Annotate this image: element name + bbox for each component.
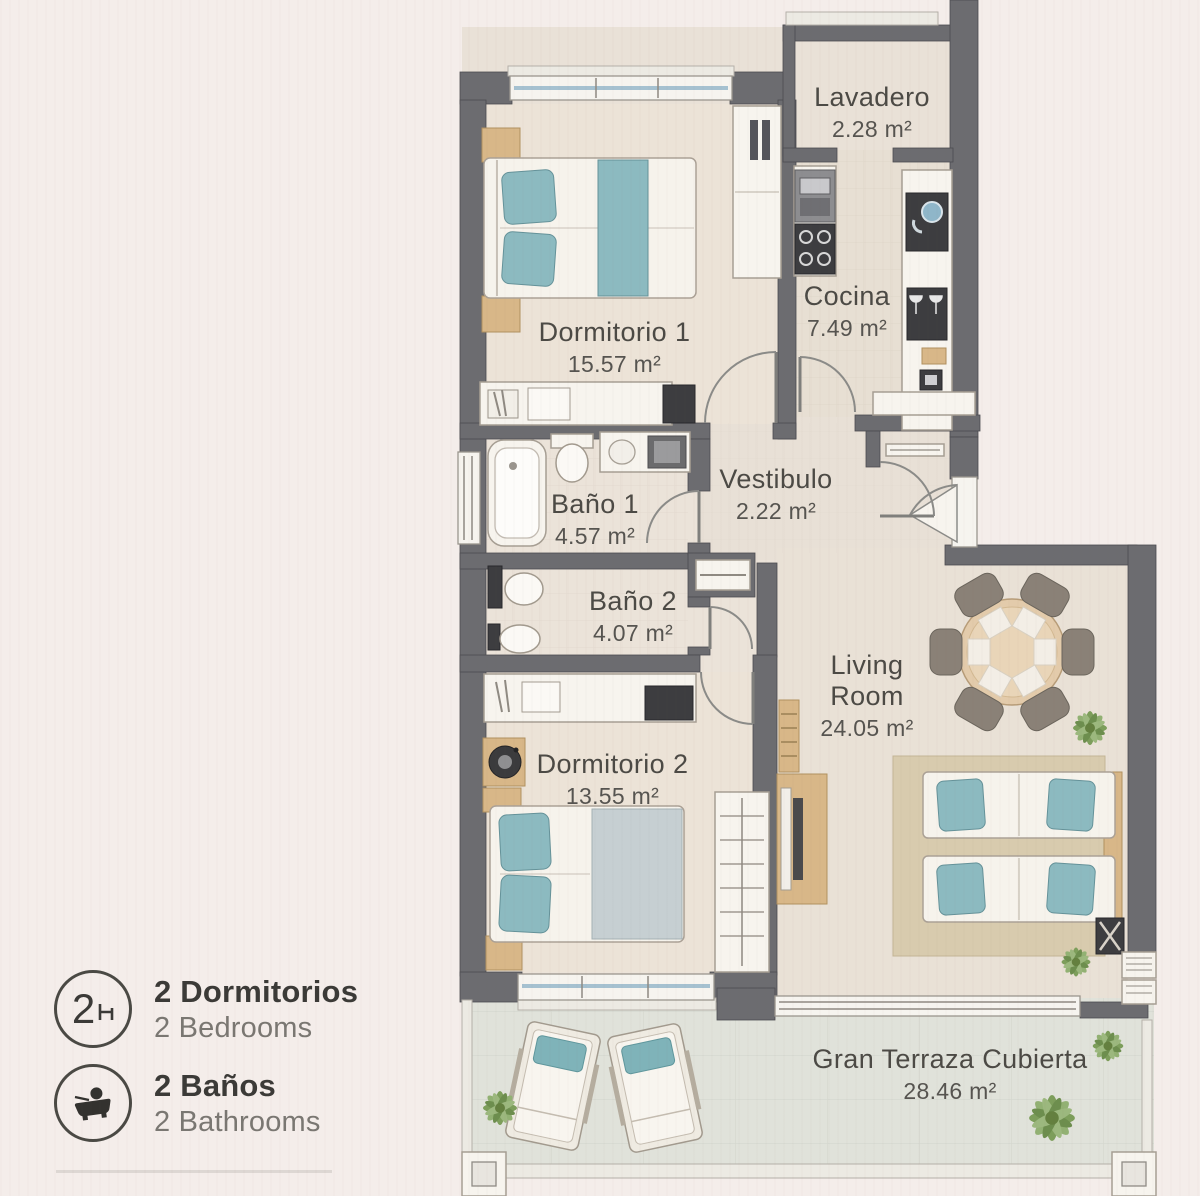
pillow bbox=[501, 169, 557, 225]
plant bbox=[1073, 711, 1107, 745]
sofa bbox=[923, 772, 1115, 838]
laundry-sill bbox=[786, 12, 938, 25]
legend: 2 2 Dormitorios 2 Bedrooms 2 Baños bbox=[54, 970, 374, 1173]
pillow bbox=[499, 875, 552, 934]
legend-subtitle: 2 Bedrooms bbox=[154, 1012, 358, 1045]
plant bbox=[483, 1091, 517, 1125]
tap bbox=[488, 624, 500, 650]
plant bbox=[1093, 1031, 1124, 1062]
oven bbox=[795, 170, 835, 222]
pillow bbox=[499, 813, 552, 872]
counter-bottom bbox=[873, 392, 975, 415]
cabinet bbox=[663, 385, 695, 423]
plant bbox=[1062, 948, 1091, 977]
sink bbox=[500, 625, 540, 653]
nightstand bbox=[482, 296, 520, 332]
cistern bbox=[488, 566, 502, 608]
pillow bbox=[936, 862, 985, 915]
legend-subtitle: 2 Bathrooms bbox=[154, 1106, 321, 1139]
legend-item-bathrooms: 2 Baños 2 Bathrooms bbox=[54, 1064, 374, 1142]
bathtub bbox=[488, 440, 546, 546]
column-footing bbox=[1112, 1152, 1156, 1196]
bath1-window bbox=[458, 452, 480, 544]
terrace-slider-door bbox=[775, 996, 1080, 1016]
sofa bbox=[923, 856, 1115, 922]
legend-title: 2 Baños bbox=[154, 1068, 321, 1104]
legend-item-bedrooms: 2 2 Dormitorios 2 Bedrooms bbox=[54, 970, 374, 1048]
sink-unit bbox=[920, 370, 942, 390]
stove bbox=[795, 224, 835, 274]
pillow bbox=[501, 231, 557, 287]
pillow bbox=[1046, 862, 1095, 915]
pillow bbox=[1046, 778, 1095, 831]
hall-closet bbox=[696, 560, 750, 590]
side-table bbox=[1096, 918, 1124, 954]
bed-icon bbox=[98, 1002, 114, 1022]
double-bed bbox=[484, 158, 696, 298]
toilet bbox=[505, 573, 543, 605]
wall-unit bbox=[1122, 952, 1156, 978]
wall-unit bbox=[1122, 980, 1156, 1004]
dining-chair bbox=[1062, 629, 1094, 675]
dresser bbox=[483, 738, 525, 786]
wardrobe bbox=[715, 792, 769, 972]
double-bed bbox=[490, 806, 684, 942]
tv-console bbox=[777, 774, 827, 904]
bed-runner bbox=[598, 160, 648, 296]
dining-chair bbox=[930, 629, 962, 675]
bathtub-icon bbox=[71, 1085, 115, 1121]
nightstand bbox=[482, 128, 520, 162]
cabinet bbox=[645, 686, 693, 720]
tv-shelf bbox=[779, 700, 799, 772]
fridge bbox=[906, 193, 948, 251]
pillow bbox=[936, 778, 985, 831]
entry-closet bbox=[886, 444, 944, 456]
legend-divider bbox=[56, 1170, 332, 1173]
bedrooms-badge: 2 bbox=[54, 970, 132, 1048]
glass-cabinet bbox=[907, 288, 947, 340]
window-sill bbox=[508, 66, 734, 76]
bathrooms-badge bbox=[54, 1064, 132, 1142]
desk bbox=[484, 674, 696, 722]
small-appliance bbox=[922, 348, 946, 364]
bedrooms-count: 2 bbox=[72, 988, 95, 1030]
floor-plan-page: Lavadero 2.28 m² Cocina 7.49 m² Dormitor… bbox=[0, 0, 1200, 1196]
plant bbox=[1029, 1095, 1075, 1141]
column-footing bbox=[462, 1152, 506, 1196]
legend-title: 2 Dormitorios bbox=[154, 974, 358, 1010]
desk bbox=[480, 382, 695, 425]
legend-text: 2 Dormitorios 2 Bedrooms bbox=[154, 974, 358, 1045]
wardrobe bbox=[733, 106, 781, 278]
vanity-sink bbox=[600, 432, 690, 472]
legend-text: 2 Baños 2 Bathrooms bbox=[154, 1068, 321, 1139]
